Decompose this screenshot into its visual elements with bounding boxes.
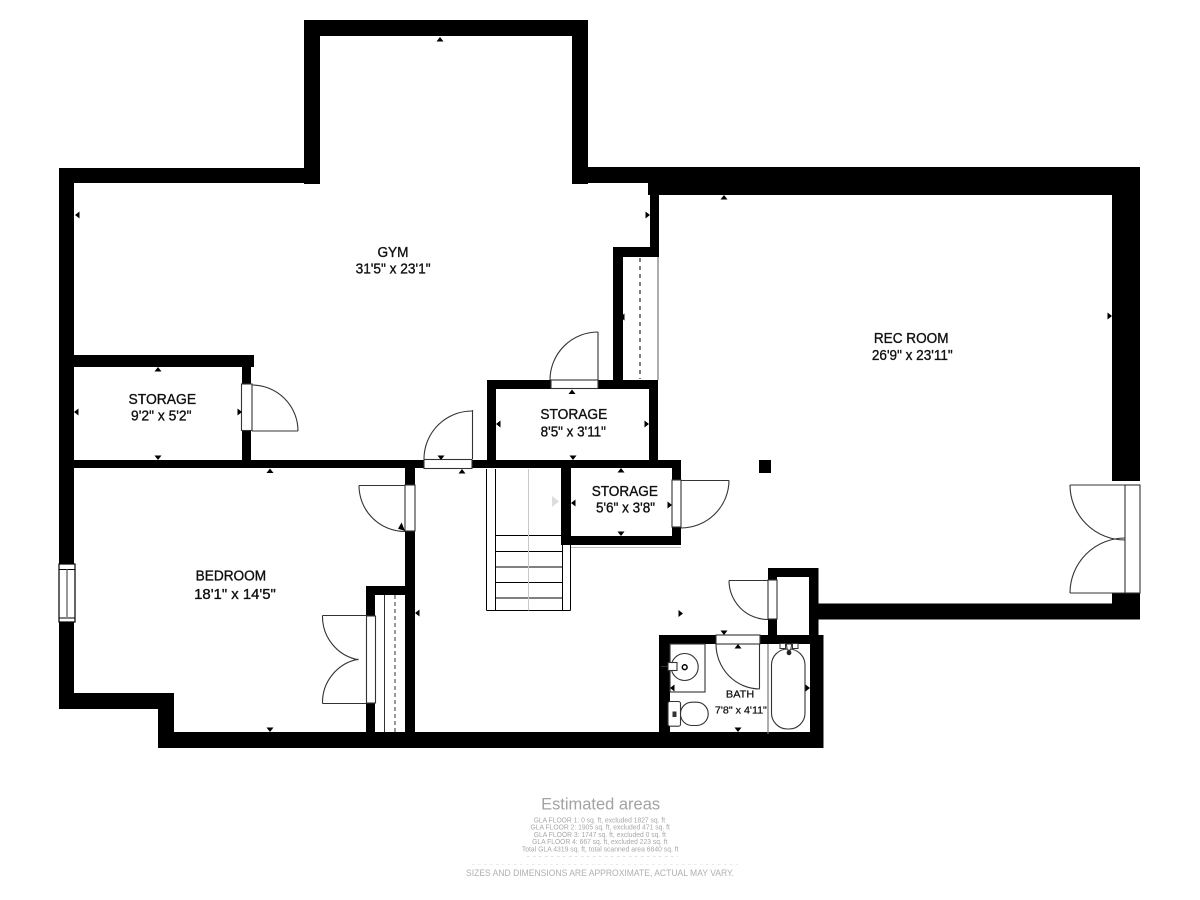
svg-text:GLA FLOOR 2: 1905 sq. ft, excl: GLA FLOOR 2: 1905 sq. ft, excluded 471 s… (531, 825, 670, 832)
svg-text:Estimated areas: Estimated areas (541, 794, 660, 813)
svg-text:REC ROOM: REC ROOM (874, 331, 949, 347)
svg-text:9'2" x 5'2": 9'2" x 5'2" (131, 409, 192, 425)
svg-text:GLA FLOOR 4: 667 sq. ft, exclu: GLA FLOOR 4: 667 sq. ft, excluded 223 sq… (532, 839, 667, 846)
svg-text:STORAGE: STORAGE (540, 407, 607, 423)
svg-text:SIZES AND DIMENSIONS ARE APPRO: SIZES AND DIMENSIONS ARE APPROXIMATE, AC… (466, 868, 734, 878)
svg-text:31'5" x 23'1": 31'5" x 23'1" (356, 262, 431, 278)
svg-text:GYM: GYM (377, 245, 408, 261)
svg-text:5'6" x 3'8": 5'6" x 3'8" (596, 500, 655, 516)
svg-text:GLA FLOOR 3: 1747 sq. ft, excl: GLA FLOOR 3: 1747 sq. ft, excluded 0 sq.… (534, 832, 666, 839)
svg-text:18'1" x 14'5": 18'1" x 14'5" (194, 587, 276, 603)
svg-text:GLA FLOOR 1: 0 sq. ft, exclude: GLA FLOOR 1: 0 sq. ft, excluded 1827 sq.… (534, 817, 665, 824)
svg-text:7'8" x 4'11": 7'8" x 4'11" (715, 704, 767, 716)
svg-text:BATH: BATH (726, 689, 754, 701)
svg-text:8'5" x 3'11": 8'5" x 3'11" (541, 424, 606, 440)
svg-text:STORAGE: STORAGE (129, 392, 197, 408)
svg-text:Total GLA 4319 sq. ft, total s: Total GLA 4319 sq. ft, total scanned are… (522, 847, 679, 854)
svg-text:BEDROOM: BEDROOM (196, 569, 267, 585)
svg-text:26'9" x 23'11": 26'9" x 23'11" (872, 348, 953, 364)
svg-text:STORAGE: STORAGE (592, 484, 659, 500)
